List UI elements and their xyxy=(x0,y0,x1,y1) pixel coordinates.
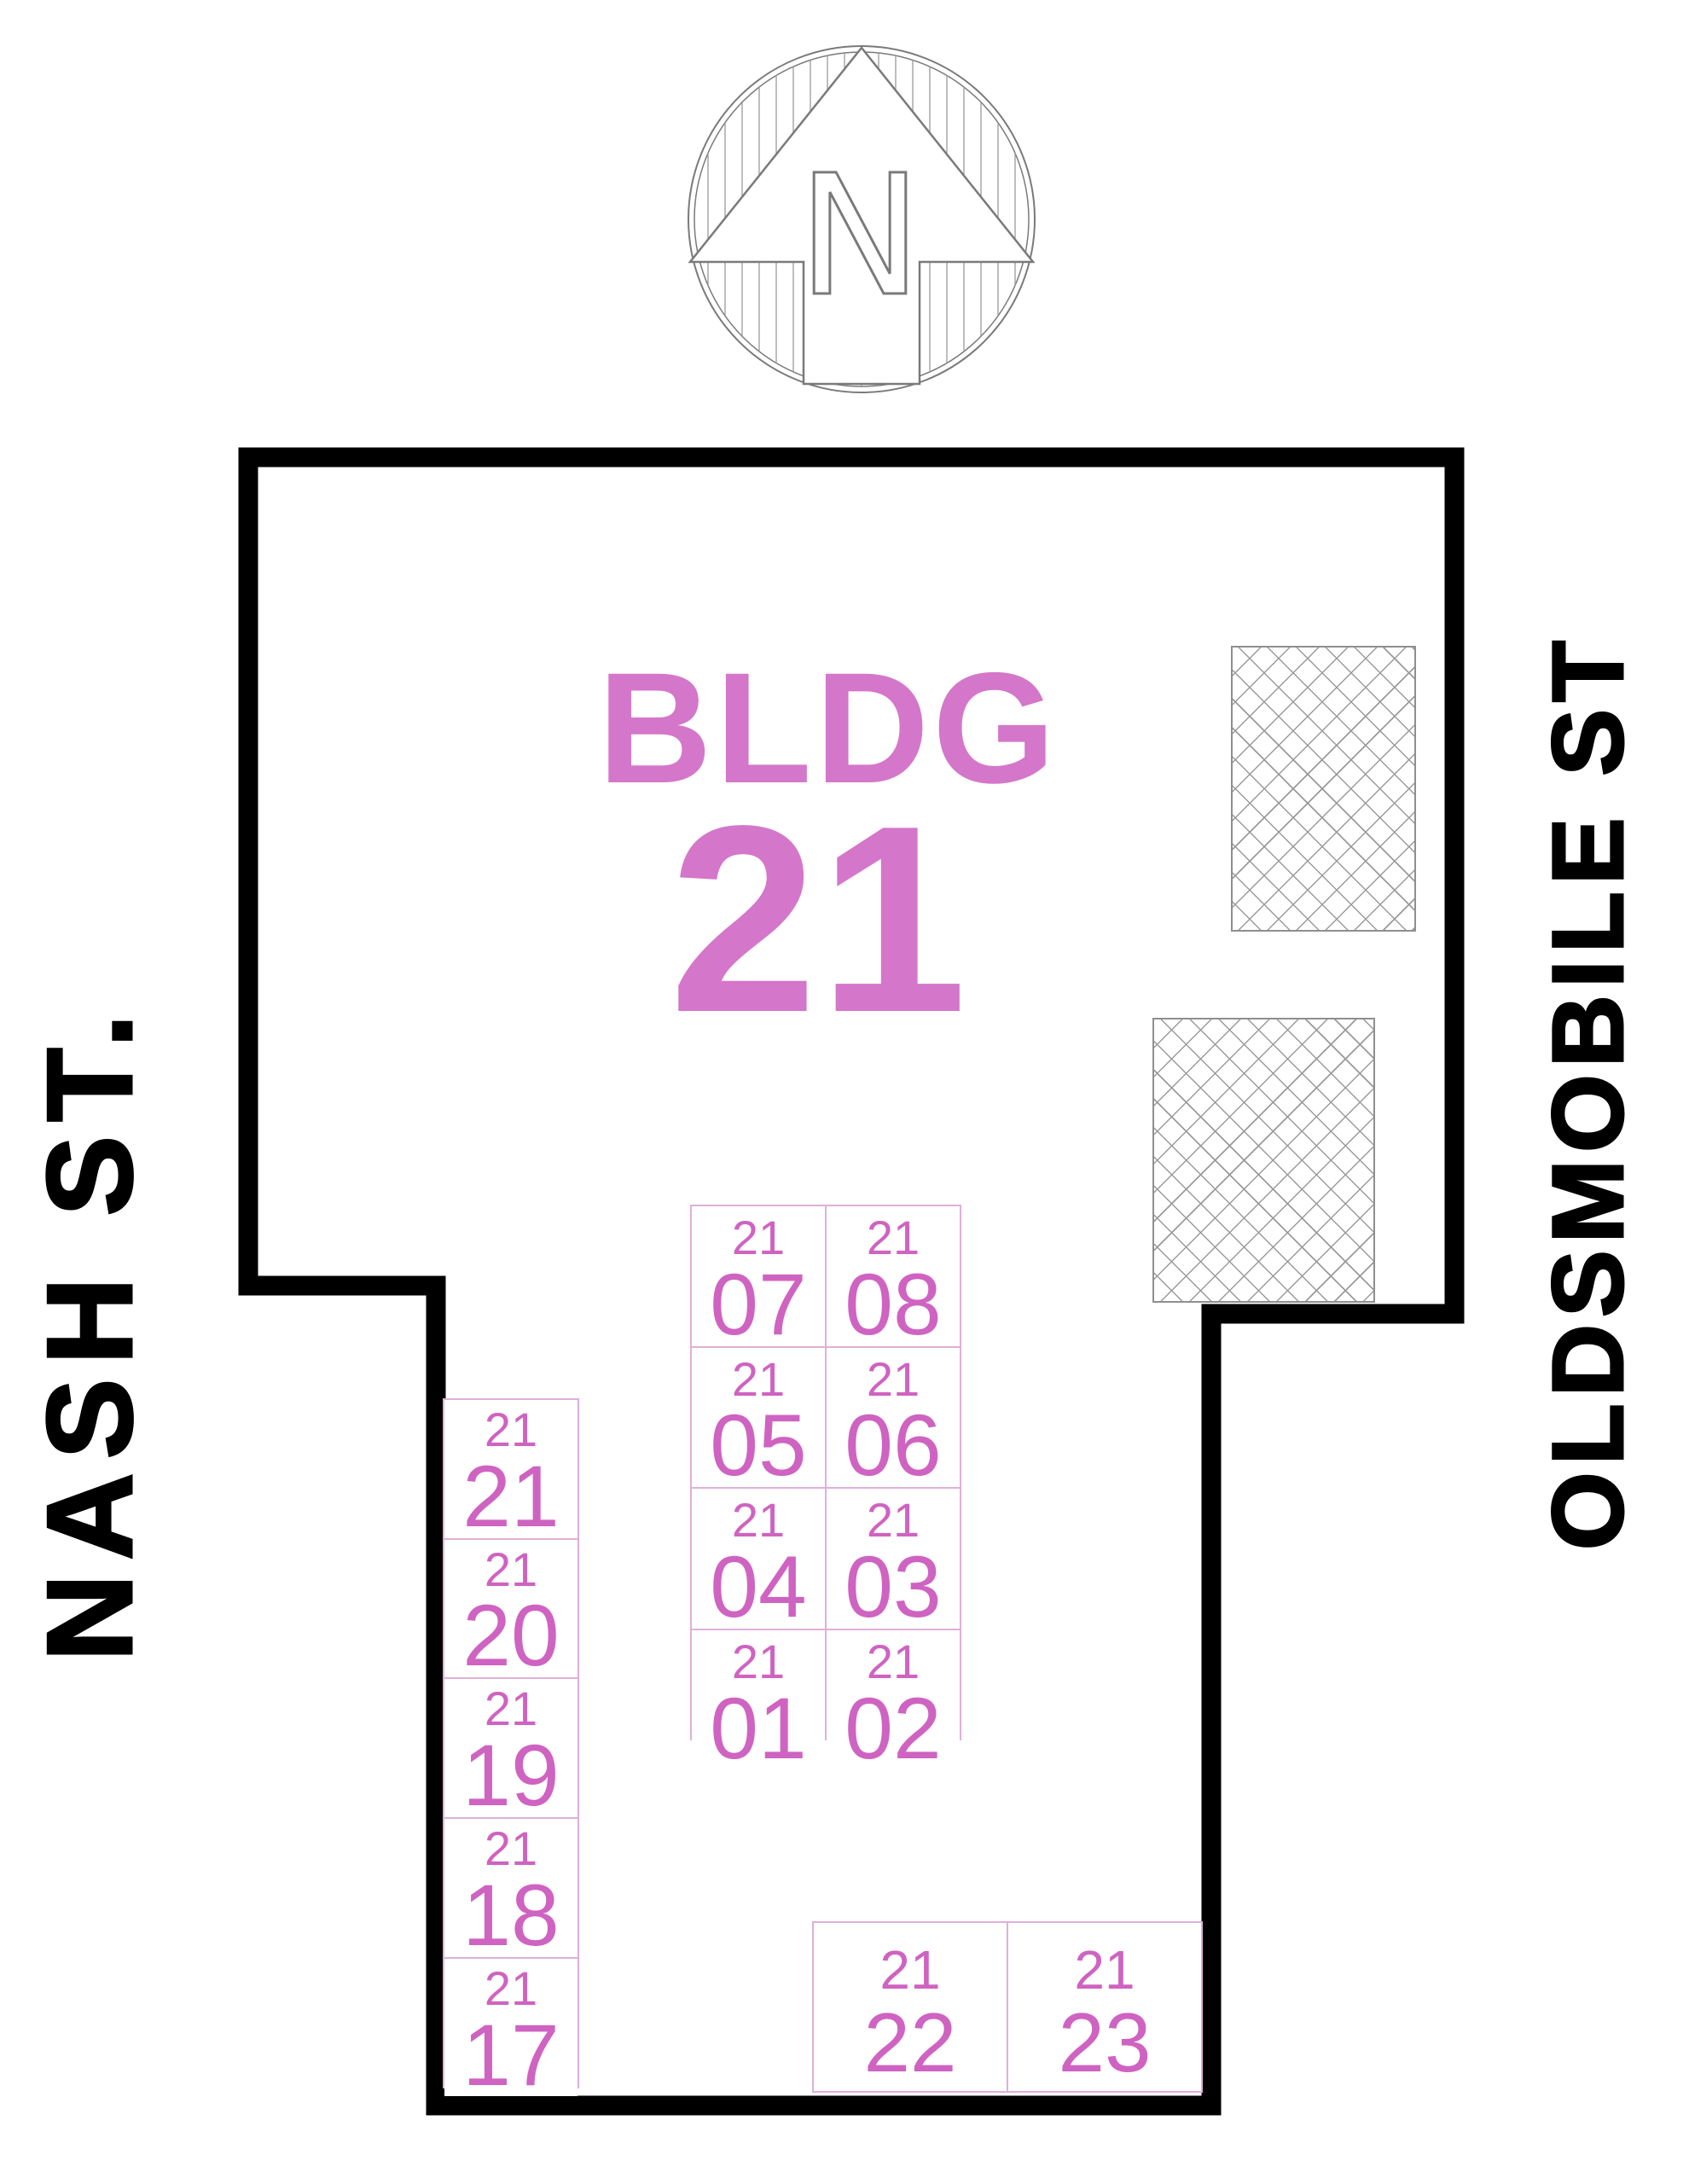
north-arrow-icon: N xyxy=(678,36,1053,411)
unit-number: 18 xyxy=(462,1874,559,1957)
unit-bldg-number: 21 xyxy=(867,1348,920,1405)
crosshatch-pad-upper xyxy=(1231,646,1416,932)
unit-number: 20 xyxy=(462,1594,559,1677)
unit-number: 19 xyxy=(462,1734,559,1817)
unit-bldg-number: 21 xyxy=(485,1959,537,2014)
crosshatch-pad-lower xyxy=(1152,1018,1375,1303)
unit-bldg-number: 21 xyxy=(867,1206,920,1263)
bottom-unit-row: 21 22 21 23 xyxy=(812,1921,1203,2093)
north-letter: N xyxy=(798,139,922,333)
unit-cell-2119: 21 19 xyxy=(444,1679,578,1817)
unit-cell-2120: 21 20 xyxy=(444,1540,578,1678)
street-label-nash: NASH ST. xyxy=(20,1001,160,1662)
unit-number: 02 xyxy=(844,1687,941,1770)
left-unit-column: 21 21 21 20 21 19 21 18 21 17 xyxy=(443,1398,579,2088)
unit-bldg-number: 21 xyxy=(867,1630,920,1687)
unit-cell-2105: 21 05 xyxy=(692,1348,825,1488)
site-plan: N NASH ST. OLDSMOBILE ST BLDG 21 21 07 2… xyxy=(0,0,1689,2184)
unit-number: 17 xyxy=(462,2014,559,2097)
unit-number: 08 xyxy=(844,1263,941,1346)
unit-cell-2108: 21 08 xyxy=(827,1206,960,1346)
center-unit-grid: 21 07 21 08 21 05 21 06 21 04 21 03 21 0… xyxy=(690,1205,961,1740)
unit-bldg-number: 21 xyxy=(879,1923,940,1999)
unit-cell-2118: 21 18 xyxy=(444,1819,578,1957)
unit-cell-2121: 21 21 xyxy=(444,1400,578,1538)
unit-number: 04 xyxy=(710,1546,806,1629)
unit-number: 23 xyxy=(1058,1999,1151,2087)
unit-cell-2123: 21 23 xyxy=(1008,1923,1201,2091)
building-number: 21 xyxy=(554,793,1083,1046)
unit-number: 22 xyxy=(863,1999,956,2087)
unit-bldg-number: 21 xyxy=(732,1489,785,1546)
unit-number: 07 xyxy=(710,1263,806,1346)
street-label-oldsmobile: OLDSMOBILE ST xyxy=(1530,634,1646,1550)
unit-cell-2101: 21 01 xyxy=(692,1630,825,1770)
unit-cell-2122: 21 22 xyxy=(814,1923,1007,2091)
unit-number: 21 xyxy=(462,1455,559,1538)
unit-cell-2102: 21 02 xyxy=(827,1630,960,1770)
unit-bldg-number: 21 xyxy=(1074,1923,1135,1999)
unit-bldg-number: 21 xyxy=(867,1489,920,1546)
unit-cell-2107: 21 07 xyxy=(692,1206,825,1346)
unit-number: 06 xyxy=(844,1404,941,1487)
unit-number: 03 xyxy=(844,1546,941,1629)
unit-number: 05 xyxy=(710,1404,806,1487)
unit-bldg-number: 21 xyxy=(732,1206,785,1263)
unit-cell-2104: 21 04 xyxy=(692,1489,825,1629)
unit-cell-2117: 21 17 xyxy=(444,1959,578,2097)
unit-bldg-number: 21 xyxy=(732,1630,785,1687)
unit-cell-2106: 21 06 xyxy=(827,1348,960,1488)
unit-bldg-number: 21 xyxy=(732,1348,785,1405)
unit-cell-2103: 21 03 xyxy=(827,1489,960,1629)
unit-number: 01 xyxy=(710,1687,806,1770)
